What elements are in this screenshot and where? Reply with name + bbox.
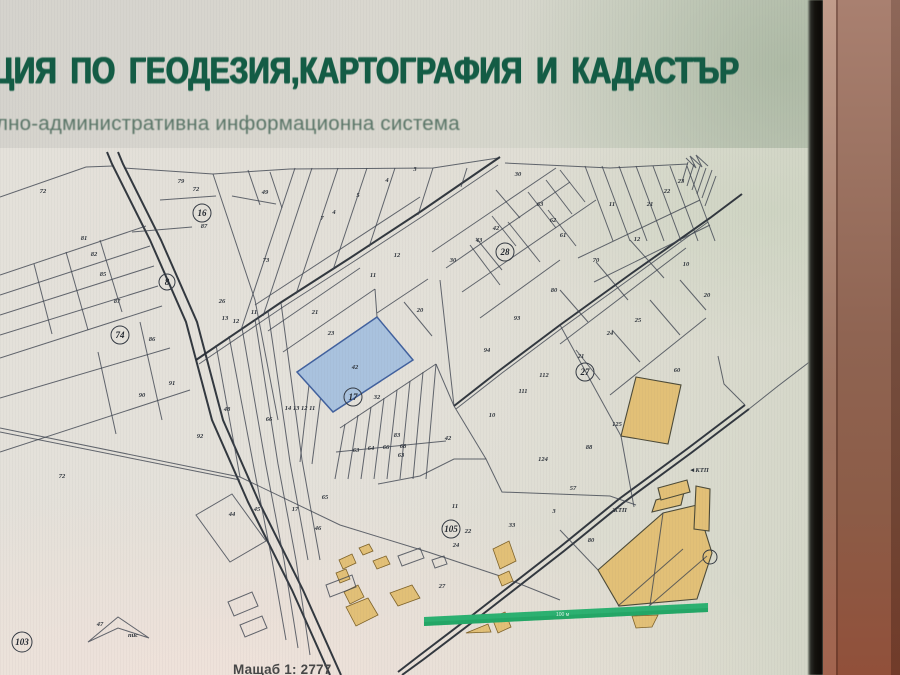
svg-text:11: 11 bbox=[452, 503, 458, 510]
svg-text:5: 5 bbox=[356, 192, 360, 199]
svg-text:44: 44 bbox=[228, 511, 236, 518]
svg-text:86: 86 bbox=[149, 336, 156, 343]
svg-text:90: 90 bbox=[139, 392, 146, 399]
svg-text:57: 57 bbox=[570, 485, 577, 492]
svg-text:7: 7 bbox=[320, 215, 324, 222]
svg-text:61: 61 bbox=[560, 232, 567, 239]
svg-text:43: 43 bbox=[475, 237, 483, 244]
svg-text:42: 42 bbox=[351, 364, 359, 371]
svg-text:11: 11 bbox=[251, 309, 257, 316]
svg-text:◄КТП: ◄КТП bbox=[689, 467, 710, 474]
svg-text:66: 66 bbox=[383, 444, 390, 451]
svg-text:4: 4 bbox=[384, 177, 389, 184]
svg-text:30: 30 bbox=[514, 171, 522, 178]
svg-text:ЖТП: ЖТП bbox=[611, 507, 628, 514]
svg-text:24: 24 bbox=[606, 330, 614, 337]
svg-text:111: 111 bbox=[518, 388, 527, 395]
svg-text:124: 124 bbox=[538, 456, 549, 463]
svg-text:100 м: 100 м bbox=[556, 612, 570, 618]
svg-text:23: 23 bbox=[677, 178, 685, 185]
svg-text:45: 45 bbox=[253, 506, 261, 513]
svg-text:12: 12 bbox=[394, 252, 401, 259]
svg-text:65: 65 bbox=[322, 494, 329, 501]
svg-text:17: 17 bbox=[349, 392, 359, 402]
svg-text:92: 92 bbox=[197, 433, 204, 440]
svg-text:72: 72 bbox=[59, 473, 66, 480]
svg-text:8: 8 bbox=[165, 277, 170, 287]
svg-text:13: 13 bbox=[222, 315, 229, 322]
svg-text:66: 66 bbox=[266, 416, 273, 423]
svg-text:63: 63 bbox=[537, 201, 544, 208]
svg-text:72: 72 bbox=[40, 188, 47, 195]
svg-text:80: 80 bbox=[588, 537, 595, 544]
svg-text:80: 80 bbox=[551, 287, 558, 294]
svg-text:27: 27 bbox=[438, 583, 446, 590]
svg-text:68: 68 bbox=[400, 443, 407, 450]
svg-text:82: 82 bbox=[91, 251, 98, 258]
svg-text:93: 93 bbox=[514, 315, 521, 322]
svg-text:12: 12 bbox=[233, 318, 240, 325]
svg-text:125: 125 bbox=[612, 421, 623, 428]
svg-text:83: 83 bbox=[394, 432, 401, 439]
svg-text:30: 30 bbox=[449, 257, 457, 264]
svg-text:72: 72 bbox=[193, 186, 200, 193]
svg-text:25: 25 bbox=[634, 317, 642, 324]
svg-text:63: 63 bbox=[353, 447, 360, 454]
svg-text:22: 22 bbox=[464, 528, 472, 535]
svg-text:48: 48 bbox=[223, 406, 231, 413]
svg-text:46: 46 bbox=[314, 525, 322, 532]
svg-text:112: 112 bbox=[539, 372, 549, 379]
svg-text:79: 79 bbox=[178, 178, 185, 185]
svg-text:88: 88 bbox=[586, 444, 593, 451]
svg-text:16: 16 bbox=[198, 208, 208, 218]
svg-text:10: 10 bbox=[683, 261, 690, 268]
svg-text:17: 17 bbox=[292, 506, 299, 513]
svg-text:87: 87 bbox=[114, 298, 121, 305]
svg-text:11: 11 bbox=[370, 272, 376, 279]
svg-text:28: 28 bbox=[500, 247, 511, 257]
svg-text:73: 73 bbox=[263, 257, 270, 264]
svg-text:21: 21 bbox=[646, 201, 654, 208]
svg-text:11: 11 bbox=[609, 201, 615, 208]
svg-text:105: 105 bbox=[444, 524, 458, 534]
svg-text:23: 23 bbox=[327, 330, 335, 337]
svg-text:20: 20 bbox=[703, 292, 711, 299]
svg-text:62: 62 bbox=[550, 217, 557, 224]
svg-text:21: 21 bbox=[577, 353, 585, 360]
svg-text:3: 3 bbox=[412, 166, 417, 173]
svg-text:21: 21 bbox=[311, 309, 319, 316]
svg-text:47: 47 bbox=[96, 621, 104, 628]
svg-text:42: 42 bbox=[492, 225, 500, 232]
svg-text:26: 26 bbox=[218, 298, 226, 305]
svg-text:12: 12 bbox=[634, 236, 641, 243]
svg-text:70: 70 bbox=[593, 257, 600, 264]
svg-text:10: 10 bbox=[489, 412, 496, 419]
svg-text:24: 24 bbox=[452, 542, 460, 549]
svg-text:42: 42 bbox=[444, 435, 452, 442]
svg-text:63: 63 bbox=[398, 452, 405, 459]
svg-text:33: 33 bbox=[508, 522, 516, 529]
svg-text:74: 74 bbox=[116, 330, 126, 340]
svg-text:27: 27 bbox=[580, 367, 591, 377]
svg-text:94: 94 bbox=[484, 347, 491, 354]
svg-text:пис: пис bbox=[128, 632, 138, 639]
svg-text:20: 20 bbox=[416, 307, 424, 314]
svg-text:4: 4 bbox=[331, 209, 336, 216]
svg-text:91: 91 bbox=[169, 380, 176, 387]
svg-text:3: 3 bbox=[551, 508, 556, 515]
svg-text:49: 49 bbox=[261, 189, 269, 196]
svg-text:81: 81 bbox=[81, 235, 88, 242]
svg-text:103: 103 bbox=[15, 637, 29, 647]
svg-text:60: 60 bbox=[674, 367, 681, 374]
svg-text:22: 22 bbox=[663, 188, 671, 195]
svg-text:64: 64 bbox=[368, 445, 375, 452]
svg-text:32: 32 bbox=[373, 394, 381, 401]
svg-text:14 13 12 11: 14 13 12 11 bbox=[285, 405, 316, 412]
svg-text:85: 85 bbox=[100, 271, 107, 278]
svg-text:87: 87 bbox=[201, 223, 208, 230]
